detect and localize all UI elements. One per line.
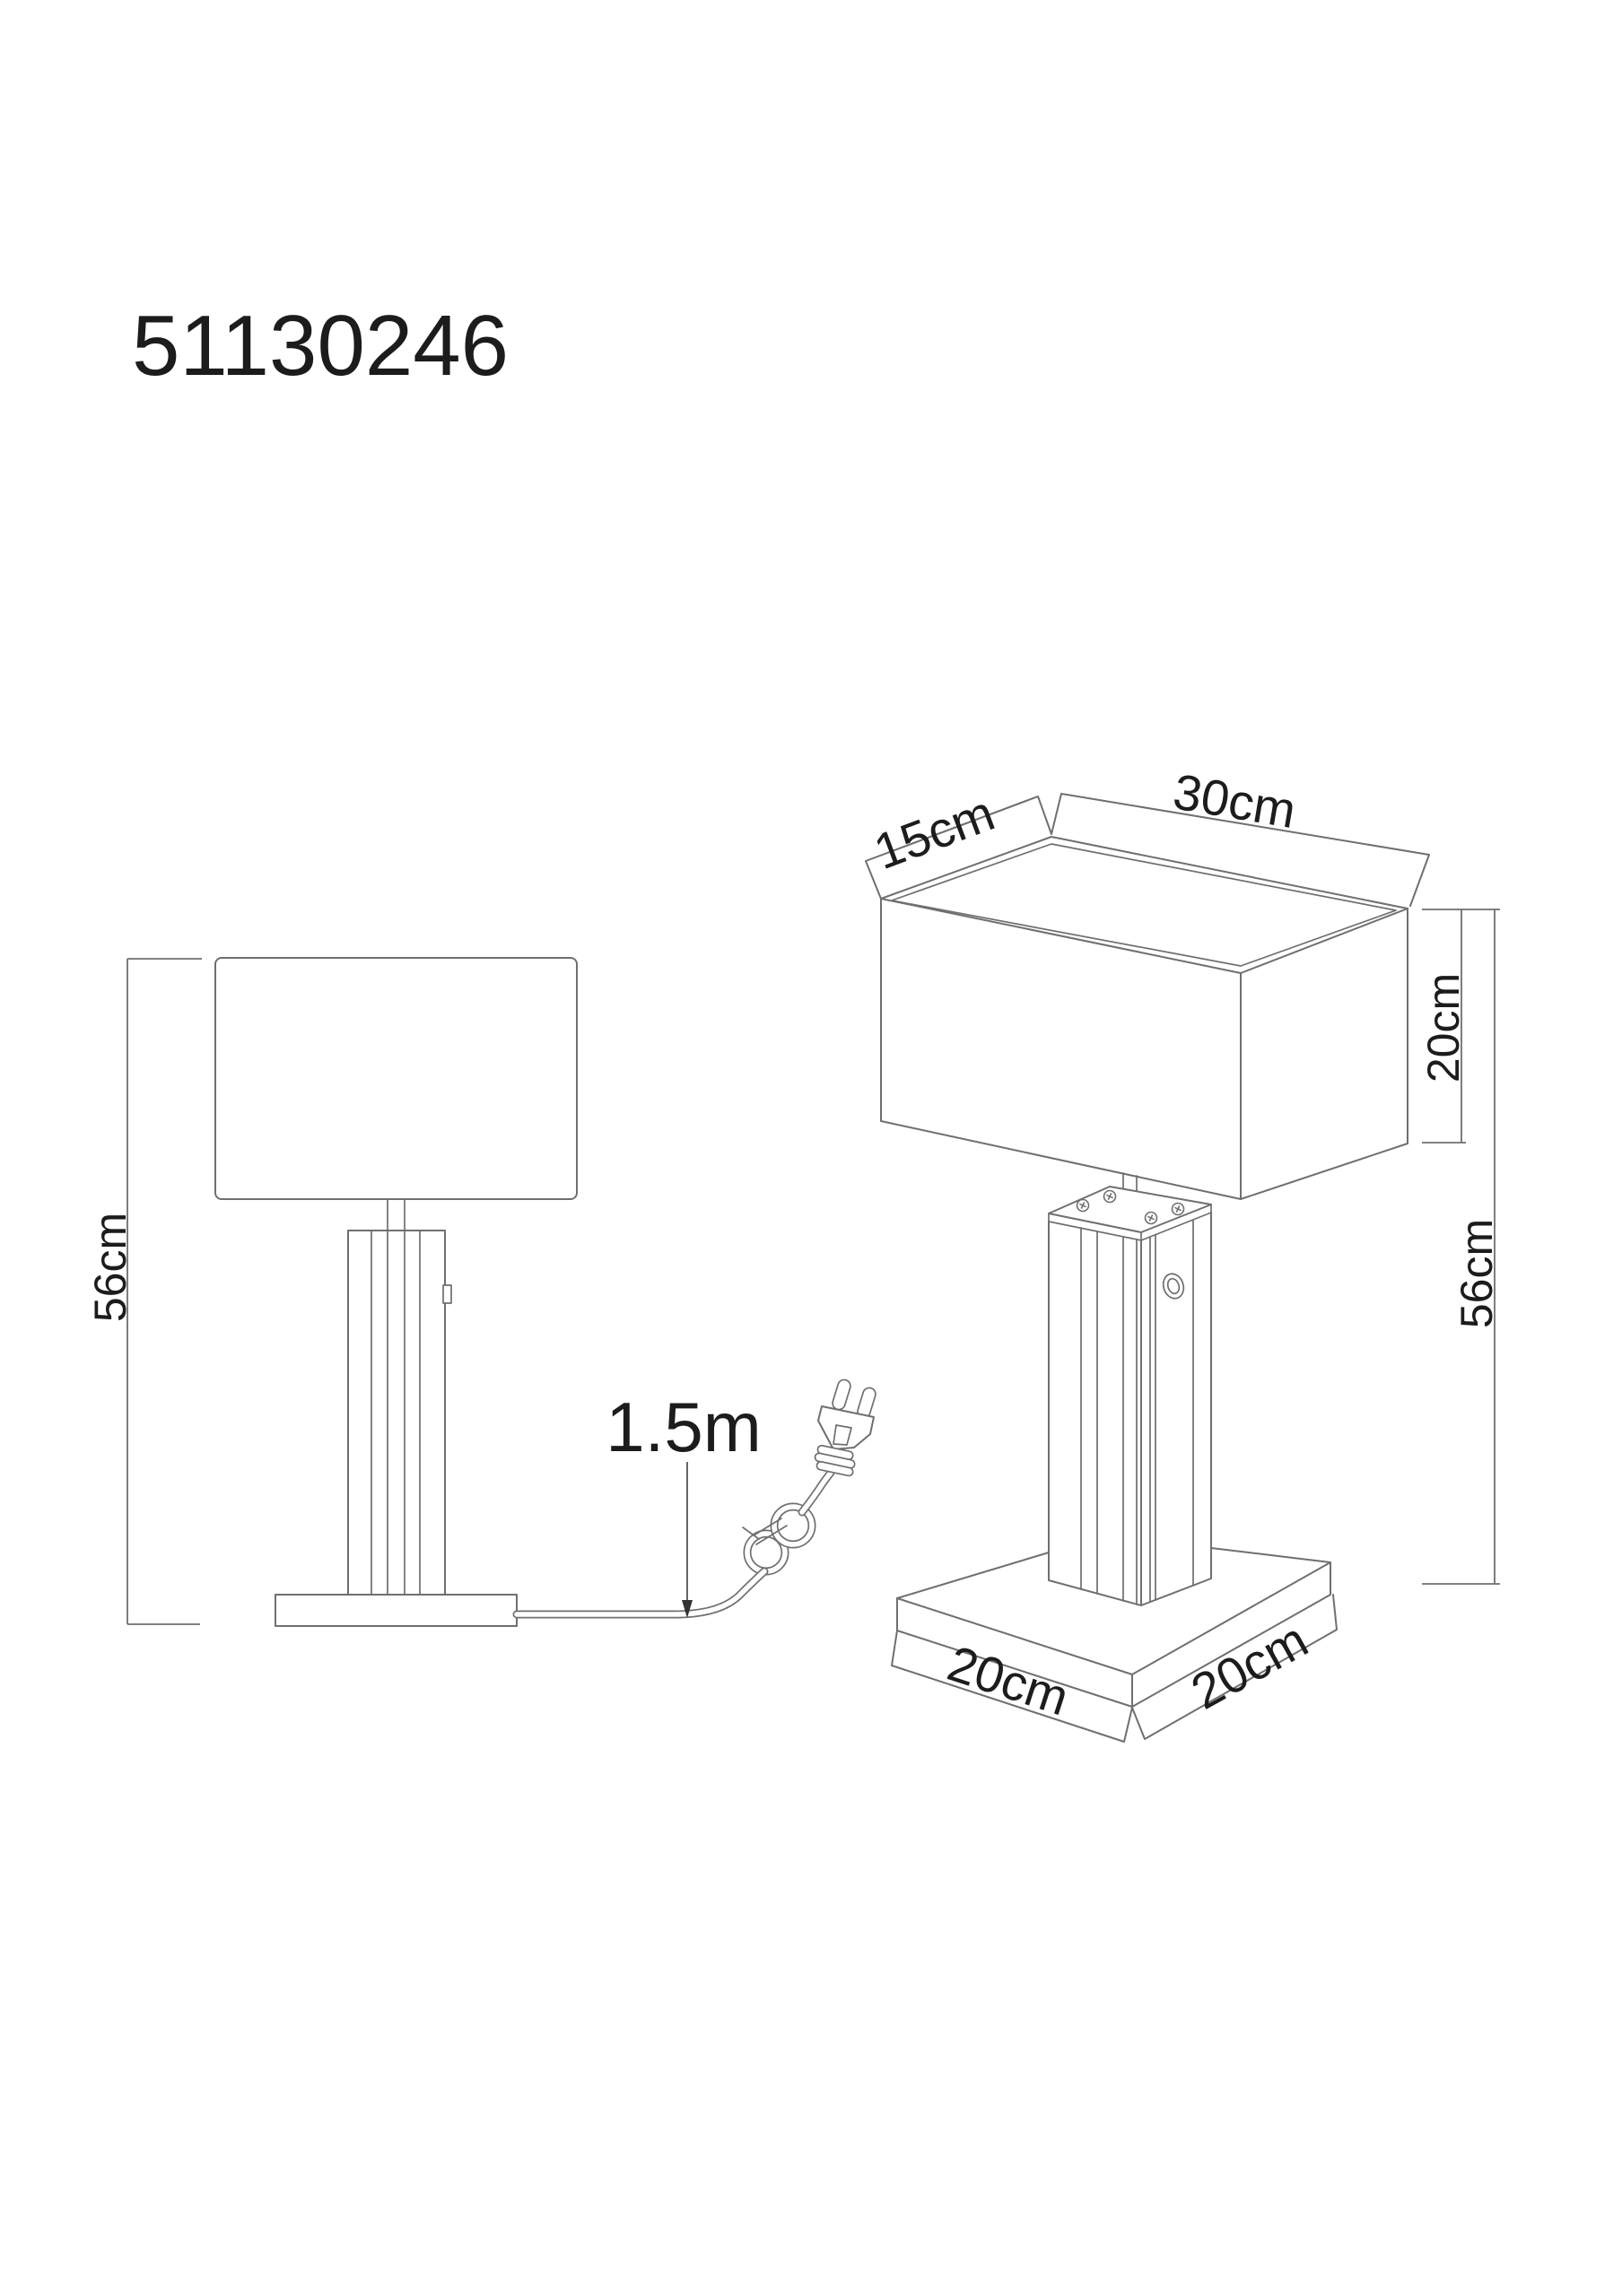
- cord-to-plug: [802, 1473, 831, 1512]
- front-lampshade: [215, 958, 577, 1199]
- cord-run-outer: [517, 1571, 764, 1614]
- perspective-switch: [1160, 1271, 1187, 1300]
- power-cord: [517, 1473, 831, 1614]
- perspective-dimensions: 20cm 56cm: [1418, 909, 1502, 1584]
- cord-length-annotation: 1.5m: [606, 1387, 761, 1618]
- front-view: 56cm: [85, 958, 577, 1626]
- column-top-cap: [1049, 1187, 1211, 1232]
- article-number: 51130246: [132, 298, 509, 394]
- shade-height-label: 20cm: [1418, 973, 1469, 1083]
- front-height-label: 56cm: [85, 1213, 135, 1322]
- perspective-column: [1049, 1213, 1211, 1605]
- power-plug-icon: [815, 1378, 877, 1477]
- front-base: [275, 1595, 517, 1626]
- cord-length-label: 1.5m: [606, 1387, 761, 1466]
- plug-prong-left: [831, 1378, 851, 1412]
- front-switch: [443, 1285, 451, 1303]
- front-height-dimension: 56cm: [85, 959, 202, 1624]
- shade-width-label: 30cm: [1169, 762, 1299, 839]
- base-depth-label: 20cm: [941, 1634, 1076, 1726]
- front-column: [348, 1231, 445, 1595]
- technical-drawing-page: 51130246 56cm: [0, 0, 1622, 2296]
- front-height-dimension-lines: [127, 959, 202, 1624]
- perspective-view: 20cm 56cm 15cm 30cm 20cm 20cm: [866, 762, 1502, 1742]
- total-height-label: 56cm: [1452, 1219, 1502, 1328]
- base-width-label: 20cm: [1182, 1611, 1316, 1719]
- front-stem: [388, 1199, 405, 1231]
- shade-top-face: [881, 837, 1408, 973]
